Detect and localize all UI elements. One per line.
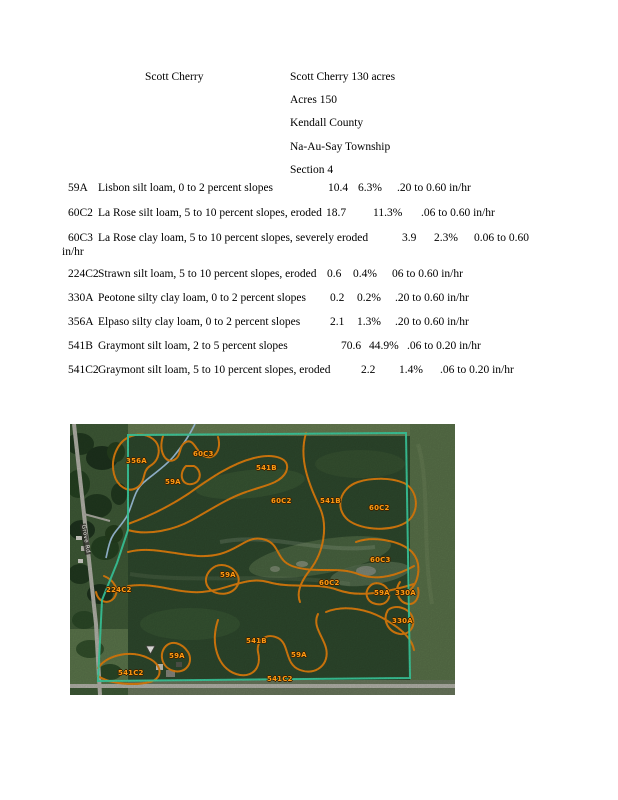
farm-info-line: Acres 150 xyxy=(290,93,337,107)
soil-table-row: 59A Lisbon silt loam, 0 to 2 percent slo… xyxy=(0,181,618,195)
farm-info-line: Kendall County xyxy=(290,116,363,130)
soil-rate: .20 to 0.60 in/hr xyxy=(397,181,471,195)
soil-percent: 1.3% xyxy=(357,315,381,329)
soil-code: 356A xyxy=(68,315,94,329)
soil-rate: .20 to 0.60 in/hr xyxy=(395,315,469,329)
farm-info-line: Scott Cherry 130 acres xyxy=(290,70,395,84)
soil-acres: 3.9 xyxy=(402,231,416,245)
map-soil-label: 59A xyxy=(291,651,307,659)
soil-rate: 0.06 to 0.60 xyxy=(474,231,529,245)
soil-acres: 18.7 xyxy=(326,206,346,220)
map-soil-label: 59A xyxy=(165,478,181,486)
soil-acres: 0.2 xyxy=(330,291,344,305)
farm-info-line: Section 4 xyxy=(290,163,333,177)
map-soil-label: 60C3 xyxy=(370,556,391,564)
map-soil-label: 541B xyxy=(320,497,341,505)
soil-percent: 44.9% xyxy=(369,339,399,353)
soil-acres: 70.6 xyxy=(341,339,361,353)
soil-table-row: 60C2 La Rose silt loam, 5 to 10 percent … xyxy=(0,206,618,220)
map-soil-label: 60C2 xyxy=(369,504,390,512)
soil-acres: 2.2 xyxy=(361,363,375,377)
map-soil-label: 541B xyxy=(256,464,277,472)
soil-description: Lisbon silt loam, 0 to 2 percent slopes xyxy=(98,181,273,195)
soil-code: 541C2 xyxy=(68,363,99,377)
map-soil-label: 541C2 xyxy=(118,669,144,677)
soil-rate: .06 to 0.20 in/hr xyxy=(440,363,514,377)
soil-code: 60C2 xyxy=(68,206,93,220)
soil-acres: 2.1 xyxy=(330,315,344,329)
soil-code: 224C2 xyxy=(68,267,99,281)
soil-table-row: 224C2 Strawn silt loam, 5 to 10 percent … xyxy=(0,267,618,281)
soil-percent: 6.3% xyxy=(358,181,382,195)
soil-code: 60C3 xyxy=(68,231,93,245)
soil-table-row: 330A Peotone silty clay loam, 0 to 2 per… xyxy=(0,291,618,305)
soil-description: La Rose clay loam, 5 to 10 percent slope… xyxy=(98,231,368,245)
soil-rate: 06 to 0.60 in/hr xyxy=(392,267,463,281)
soil-table-row: 541B Graymont silt loam, 2 to 5 percent … xyxy=(0,339,618,353)
owner-name: Scott Cherry xyxy=(145,70,203,84)
map-soil-label: 59A xyxy=(374,589,390,597)
map-soil-label: 59A xyxy=(220,571,236,579)
farm-info-line: Na-Au-Say Township xyxy=(290,140,390,154)
soil-code: 541B xyxy=(68,339,93,353)
soil-acres: 0.6 xyxy=(327,267,341,281)
soil-code: 59A xyxy=(68,181,88,195)
soil-percent: 0.2% xyxy=(357,291,381,305)
map-soil-label: 60C3 xyxy=(193,450,214,458)
soil-rate: .06 to 0.20 in/hr xyxy=(407,339,481,353)
soil-description: Strawn silt loam, 5 to 10 percent slopes… xyxy=(98,267,316,281)
soil-percent: 1.4% xyxy=(399,363,423,377)
map-soil-label: 224C2 xyxy=(106,586,132,594)
soil-code: 330A xyxy=(68,291,94,305)
soil-percent: 2.3% xyxy=(434,231,458,245)
map-soil-label: 60C2 xyxy=(319,579,340,587)
soil-rate: .06 to 0.60 in/hr xyxy=(421,206,495,220)
document-page: { "header": { "owner_name": "Scott Cherr… xyxy=(0,0,618,800)
soil-table-row: 60C3 La Rose clay loam, 5 to 10 percent … xyxy=(0,231,618,245)
map-soil-label: 59A xyxy=(169,652,185,660)
soil-description: Graymont silt loam, 5 to 10 percent slop… xyxy=(98,363,331,377)
soil-table-row: 541C2 Graymont silt loam, 5 to 10 percen… xyxy=(0,363,618,377)
soil-description: Peotone silty clay loam, 0 to 2 percent … xyxy=(98,291,306,305)
map-soil-label: 541B xyxy=(246,637,267,645)
soil-acres: 10.4 xyxy=(328,181,348,195)
soil-description: Graymont silt loam, 2 to 5 percent slope… xyxy=(98,339,288,353)
soil-map: 356A 60C3 541B 59A 60C2 541B 60C2 60C3 5… xyxy=(70,424,455,695)
map-soil-label: 356A xyxy=(126,457,147,465)
soil-rate: .20 to 0.60 in/hr xyxy=(395,291,469,305)
soil-description: La Rose silt loam, 5 to 10 percent slope… xyxy=(98,206,322,220)
map-soil-label: 60C2 xyxy=(271,497,292,505)
soil-percent: 11.3% xyxy=(373,206,402,220)
map-soil-label: 330A xyxy=(395,589,416,597)
map-soil-label: 330A xyxy=(392,617,413,625)
soil-description: Elpaso silty clay loam, 0 to 2 percent s… xyxy=(98,315,300,329)
soil-rate-wrap: in/hr xyxy=(62,245,84,259)
map-soil-label: 541C2 xyxy=(267,675,293,683)
soil-table-row: 356A Elpaso silty clay loam, 0 to 2 perc… xyxy=(0,315,618,329)
soil-percent: 0.4% xyxy=(353,267,377,281)
